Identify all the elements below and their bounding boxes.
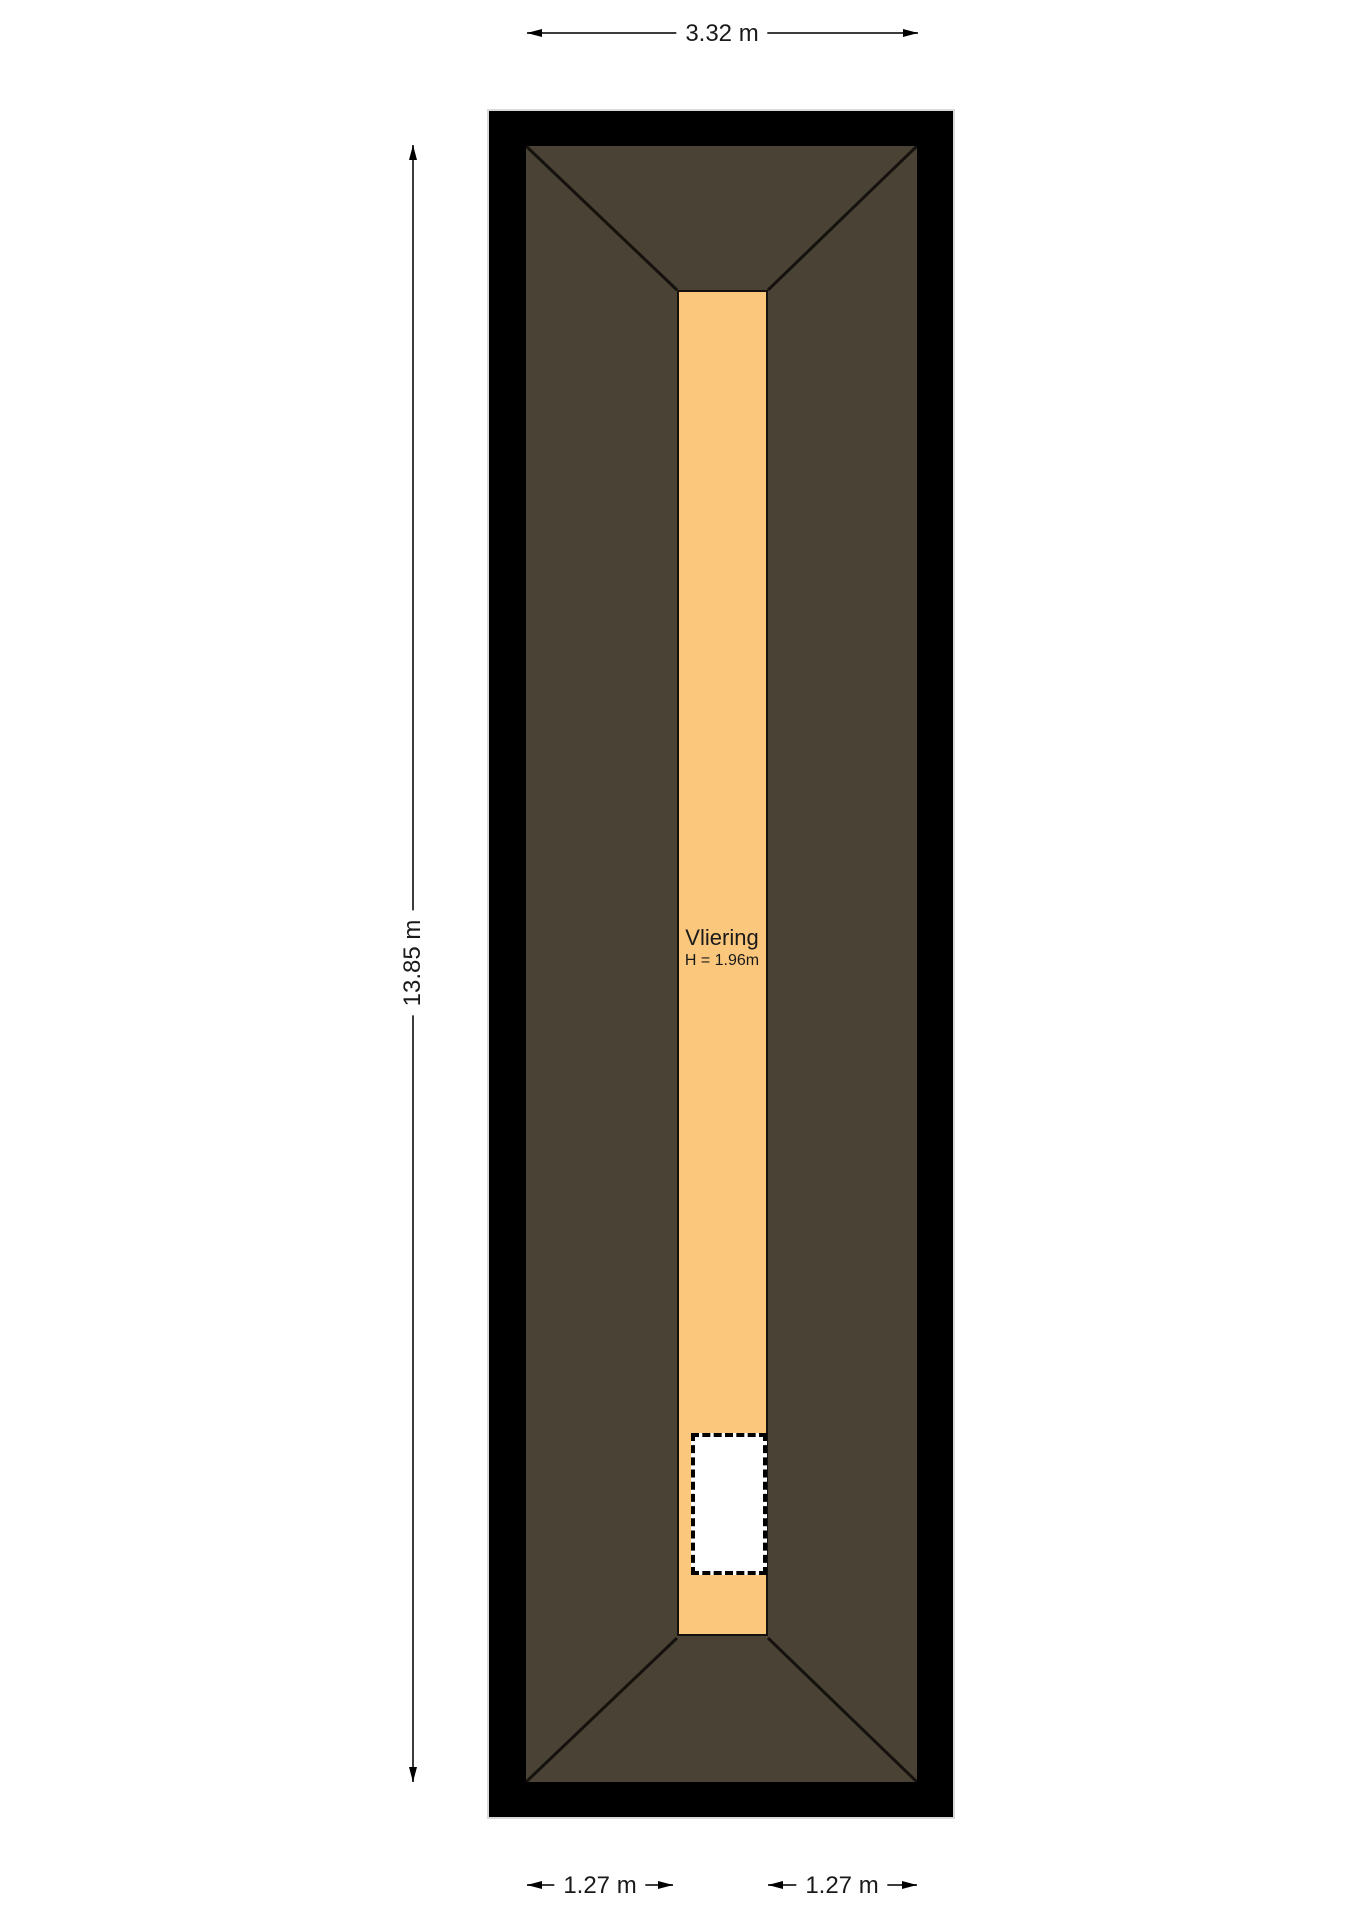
floor-opening-hatch [691, 1433, 767, 1575]
room-label: Vliering H = 1.96m [685, 925, 759, 971]
arrow-right-icon [903, 29, 918, 37]
building-walls: Vliering H = 1.96m [489, 111, 953, 1817]
dimension-label: 1.27 m [554, 1873, 645, 1899]
arrow-left-icon [527, 29, 542, 37]
attic-room: Vliering H = 1.96m [526, 146, 917, 1782]
arrow-right-icon [902, 1881, 917, 1889]
dimension-label: 3.32 m [676, 21, 767, 47]
floorplan-page: 3.32 m 13.85 m Vliering H = 1.96m [0, 0, 1358, 1920]
arrow-left-icon [527, 1881, 542, 1889]
arrow-up-icon [409, 145, 417, 160]
room-height: H = 1.96m [685, 951, 759, 971]
dimension-label: 1.27 m [796, 1873, 887, 1899]
room-name: Vliering [685, 925, 759, 951]
dimension-label: 13.85 m [400, 911, 426, 1016]
arrow-right-icon [658, 1881, 673, 1889]
arrow-left-icon [768, 1881, 783, 1889]
arrow-down-icon [409, 1767, 417, 1782]
